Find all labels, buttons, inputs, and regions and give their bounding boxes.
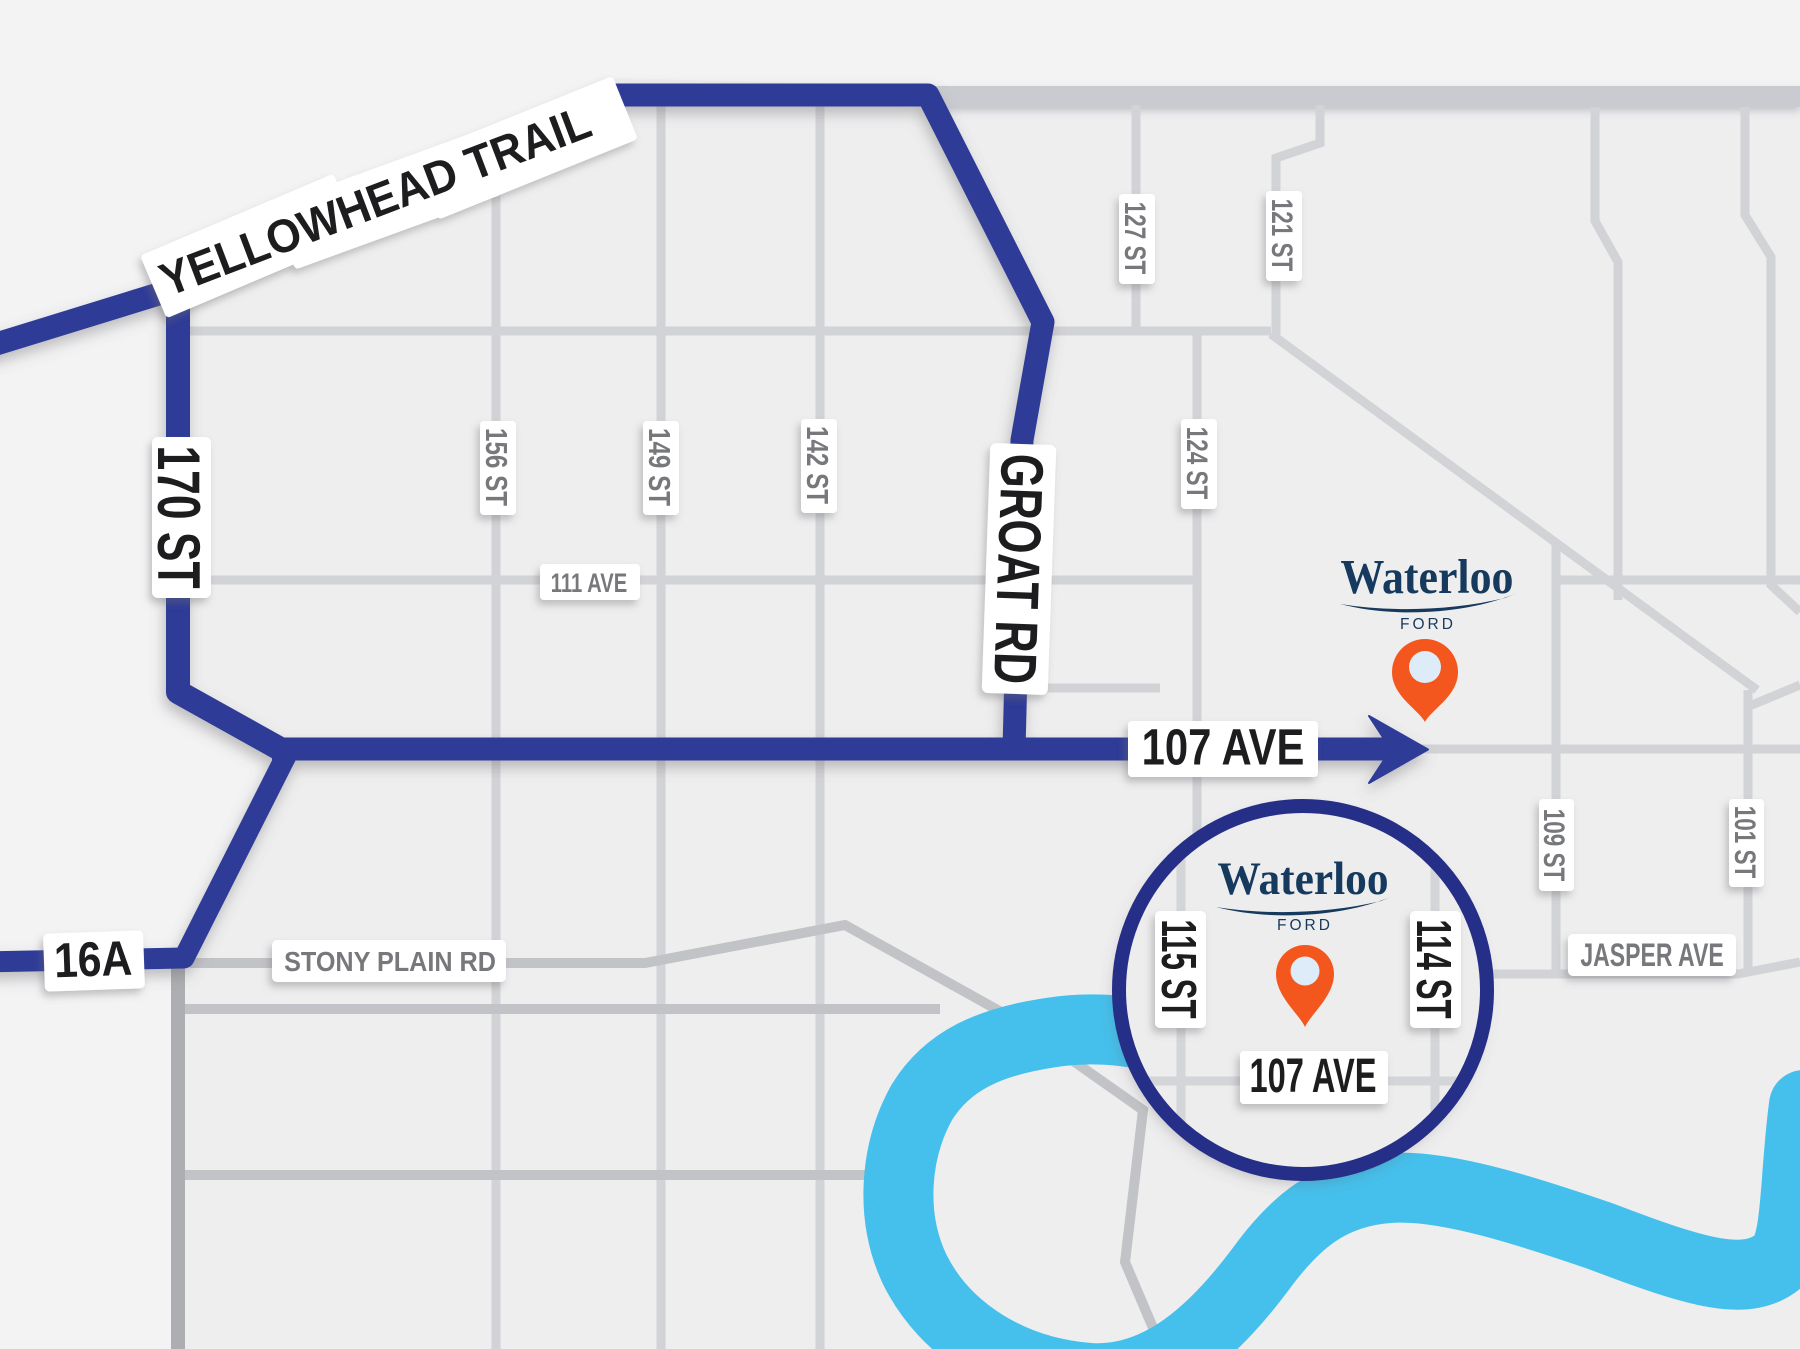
svg-text:111 AVE: 111 AVE (551, 568, 628, 599)
svg-text:GROAT RD: GROAT RD (980, 453, 1055, 685)
svg-text:124 ST: 124 ST (1180, 427, 1214, 500)
svg-text:107 AVE: 107 AVE (1142, 719, 1305, 776)
svg-text:JASPER AVE: JASPER AVE (1580, 937, 1723, 973)
svg-text:107 AVE: 107 AVE (1250, 1049, 1377, 1103)
svg-text:Waterloo: Waterloo (1218, 853, 1389, 905)
svg-text:156 ST: 156 ST (479, 428, 514, 506)
svg-text:16A: 16A (53, 930, 133, 988)
svg-text:109 ST: 109 ST (1537, 809, 1571, 882)
svg-text:142 ST: 142 ST (800, 426, 835, 504)
svg-text:101 ST: 101 ST (1728, 806, 1762, 879)
svg-text:121 ST: 121 ST (1265, 199, 1299, 272)
svg-text:114 ST: 114 ST (1406, 919, 1461, 1018)
svg-text:STONY PLAIN RD: STONY PLAIN RD (284, 946, 496, 978)
svg-text:170 ST: 170 ST (144, 445, 211, 588)
svg-text:FORD: FORD (1400, 616, 1456, 633)
svg-text:115 ST: 115 ST (1151, 919, 1206, 1018)
svg-text:Waterloo: Waterloo (1341, 549, 1514, 604)
svg-text:149 ST: 149 ST (642, 428, 677, 506)
svg-text:127 ST: 127 ST (1118, 202, 1152, 275)
svg-text:FORD: FORD (1277, 917, 1333, 934)
